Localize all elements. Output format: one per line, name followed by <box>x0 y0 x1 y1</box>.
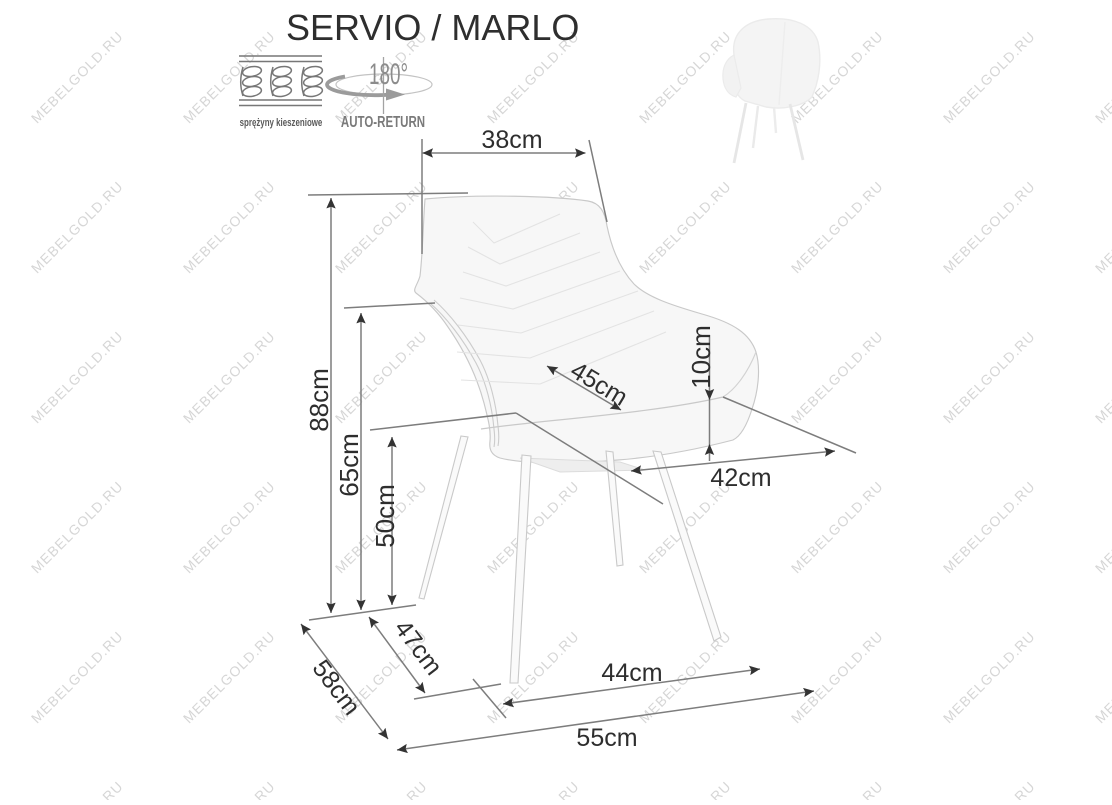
svg-text:AUTO-RETURN: AUTO-RETURN <box>341 112 425 130</box>
svg-text:180°: 180° <box>369 58 408 92</box>
svg-text:50cm: 50cm <box>370 484 400 548</box>
svg-text:55cm: 55cm <box>576 724 637 752</box>
svg-text:65cm: 65cm <box>334 433 364 497</box>
svg-text:sprężyny kieszeniowe: sprężyny kieszeniowe <box>240 117 323 130</box>
svg-text:10cm: 10cm <box>686 325 716 389</box>
svg-text:44cm: 44cm <box>601 659 662 687</box>
svg-text:42cm: 42cm <box>710 464 771 492</box>
svg-text:38cm: 38cm <box>481 126 542 154</box>
svg-text:SERVIO / MARLO: SERVIO / MARLO <box>286 7 579 48</box>
svg-text:88cm: 88cm <box>304 368 334 432</box>
